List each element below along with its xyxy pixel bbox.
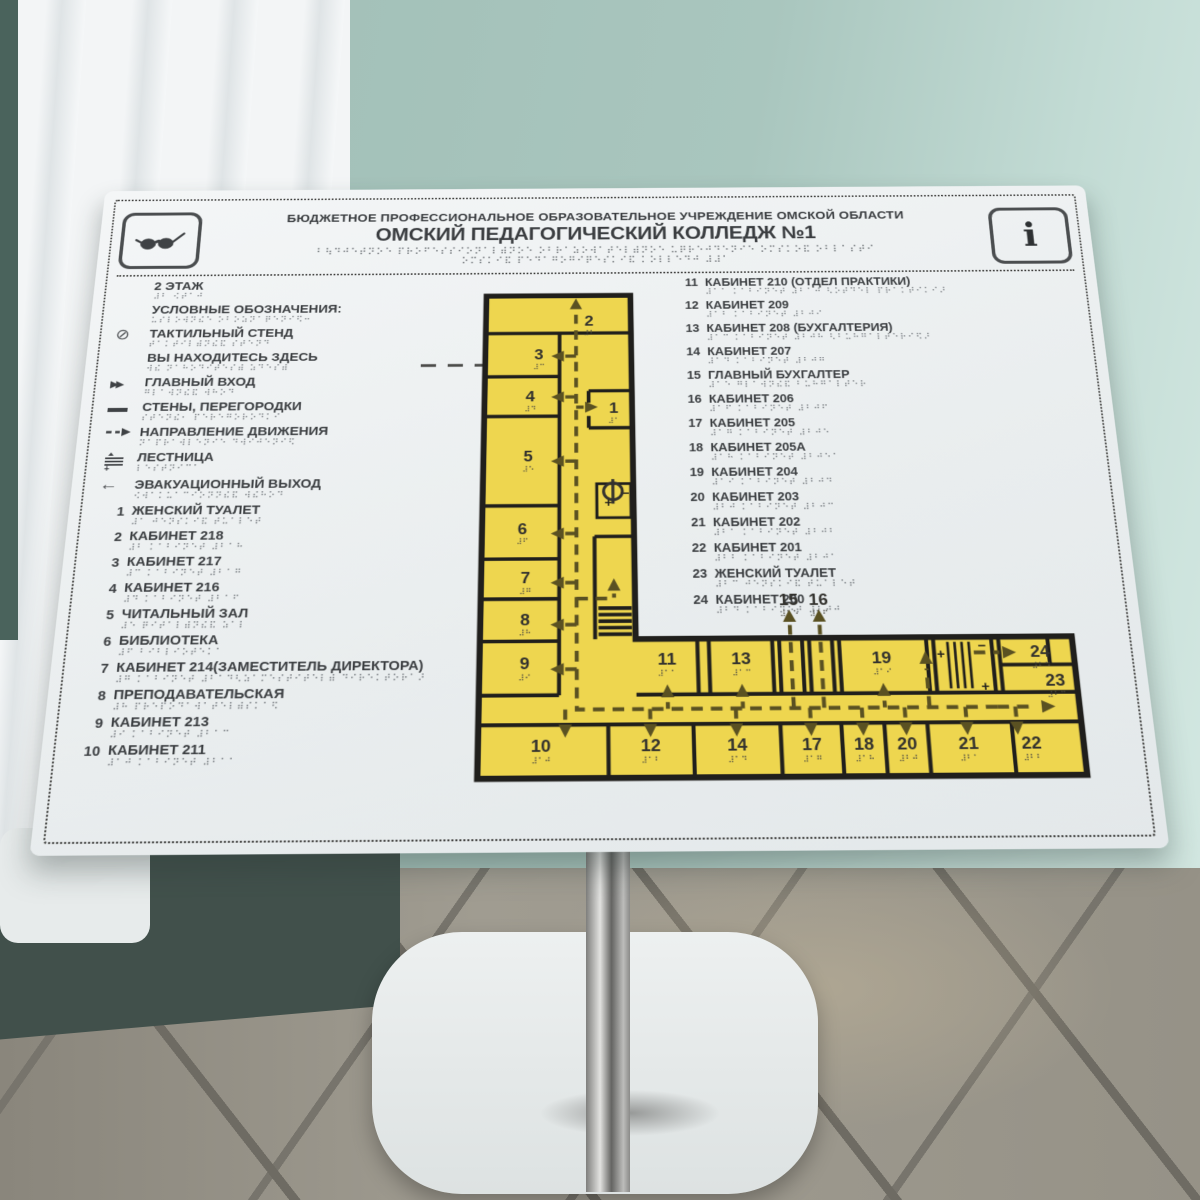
plan-room-braille: ⠼⠁: [608, 416, 620, 425]
room-list-item: 18КАБИНЕТ 205А⠼⠁⠓ ⠅⠁⠃⠊⠝⠑⠞ ⠼⠃⠚⠑⠁: [676, 438, 1062, 462]
plan-room-braille: ⠼⠊: [518, 673, 531, 683]
svg-text:+: +: [604, 496, 612, 510]
legend-item-braille: ⠛⠇⠁⠺⠝⠮⠯ ⠺⠓⠕⠙: [143, 387, 488, 398]
direction-arrow: [644, 724, 658, 737]
plan-room-label: 22: [1020, 733, 1042, 753]
legend-item: СТЕНЫ, ПЕРЕГОРОДКИ⠎⠞⠑⠝⠮⠂ ⠏⠑⠗⠑⠛⠕⠗⠕⠙⠅⠊: [106, 399, 488, 423]
plan-room-label: 8: [520, 610, 530, 628]
floor-label: 2 ЭТАЖ ⠼⠃ ⠪⠞⠁⠚: [119, 279, 490, 302]
tactile-stand-icon: ⊘: [115, 326, 131, 343]
direction-arrow: [877, 683, 891, 696]
room-number: 10: [69, 744, 109, 770]
plan-room-braille: ⠼⠙: [524, 405, 536, 414]
legend-item-braille: ⠝⠁⠏⠗⠁⠺⠇⠑⠝⠊⠑ ⠙⠺⠊⠚⠑⠝⠊⠫: [138, 437, 487, 448]
room-list-item: 3КАБИНЕТ 217⠼⠉ ⠅⠁⠃⠊⠝⠑⠞ ⠼⠃⠁⠛: [89, 553, 485, 579]
plan-room-label: 23: [1044, 671, 1066, 690]
room-braille: ⠼⠙ ⠅⠁⠃⠊⠝⠑⠞ ⠼⠃⠁⠋: [123, 593, 485, 605]
room-list-item: 20КАБИНЕТ 203⠼⠃⠚ ⠅⠁⠃⠊⠝⠑⠞ ⠼⠃⠚⠉: [677, 488, 1067, 513]
room-list-item: 7КАБИНЕТ 214(ЗАМЕСТИТЕЛЬ ДИРЕКТОРА)⠼⠛ ⠅⠁…: [78, 659, 484, 686]
room-list-item: 1ЖЕНСКИЙ ТУАЛЕТ⠼⠁ ⠚⠑⠝⠎⠅⠊⠯ ⠞⠥⠁⠇⠑⠞: [95, 502, 487, 527]
room-number: 19: [676, 465, 712, 488]
floor-label-braille: ⠼⠃ ⠪⠞⠁⠚: [153, 291, 490, 301]
room-braille: ⠼⠊ ⠅⠁⠃⠊⠝⠑⠞ ⠼⠃⠁⠉: [109, 728, 482, 741]
room-number: 22: [678, 541, 714, 564]
room-list-item: 4КАБИНЕТ 216⠼⠙ ⠅⠁⠃⠊⠝⠑⠞ ⠼⠃⠁⠋: [87, 579, 485, 605]
direction-arrow: [804, 723, 818, 736]
room-braille: ⠼⠁⠓ ⠅⠁⠃⠊⠝⠑⠞ ⠼⠃⠚⠑⠁: [711, 452, 1061, 463]
legend-item: ←ЭВАКУАЦИОННЫЙ ВЫХОД⠪⠺⠁⠅⠥⠁⠉⠊⠕⠝⠝⠮⠯ ⠺⠮⠓⠕⠙: [98, 477, 487, 502]
plan-room-braille: ⠼⠓: [518, 629, 531, 639]
plan-room-label: 9: [520, 655, 530, 674]
plan-room-braille: ⠼⠁⠚: [531, 755, 551, 765]
direction-icon: [105, 427, 133, 437]
plan-room-braille: ⠼⠁⠛: [803, 754, 823, 764]
board-header: БЮДЖЕТНОЕ ПРОФЕССИОНАЛЬНОЕ ОБРАЗОВАТЕЛЬН…: [117, 201, 1075, 276]
direction-arrow: [551, 528, 564, 540]
direction-arrow: [551, 351, 564, 362]
room-list-item: 12КАБИНЕТ 209⠼⠁⠃ ⠅⠁⠃⠊⠝⠑⠞ ⠼⠃⠚⠊: [672, 297, 1045, 320]
room-braille: ⠼⠁ ⠚⠑⠝⠎⠅⠊⠯ ⠞⠥⠁⠇⠑⠞: [130, 516, 486, 528]
plan-room-label: 3: [534, 346, 543, 362]
plan-room-label: 6: [518, 520, 528, 538]
room-number: 18: [676, 441, 711, 463]
legend-column: 2 ЭТАЖ ⠼⠃ ⠪⠞⠁⠚ УСЛОВНЫЕ ОБОЗНАЧЕНИЯ: ⠥⠎⠇…: [69, 279, 491, 772]
plan-room-label: 19: [871, 648, 892, 667]
room-list-item: 19КАБИНЕТ 204⠼⠁⠊ ⠅⠁⠃⠊⠝⠑⠞ ⠼⠃⠚⠙: [676, 463, 1064, 488]
direction-arrow: [661, 684, 675, 697]
legend-item: ⊘ТАКТИЛЬНЫЙ СТЕНД⠞⠁⠅⠞⠊⠇⠾⠝⠮⠯ ⠎⠞⠑⠝⠙: [114, 326, 490, 349]
room-braille: ⠼⠑ ⠟⠊⠞⠁⠇⠾⠝⠮⠯ ⠵⠁⠇: [120, 619, 484, 631]
plan-room-label: 17: [801, 734, 822, 754]
room-number: 14: [673, 345, 708, 366]
room-list-item: 6БИБЛИОТЕКА⠼⠋ ⠃⠊⠃⠇⠊⠕⠞⠑⠅⠁: [81, 632, 484, 659]
stand-pole: [586, 826, 630, 1192]
legend-item-braille: ⠞⠁⠅⠞⠊⠇⠾⠝⠮⠯ ⠎⠞⠑⠝⠙: [148, 339, 489, 350]
room-list-item: 11КАБИНЕТ 210 (ОТДЕЛ ПРАКТИКИ)⠼⠁⠁ ⠅⠁⠃⠊⠝⠑…: [671, 274, 1042, 297]
room-braille: ⠼⠁⠙ ⠅⠁⠃⠊⠝⠑⠞ ⠼⠃⠚⠛: [707, 355, 1050, 366]
room-list-11-24: 11КАБИНЕТ 210 (ОТДЕЛ ПРАКТИКИ)⠼⠁⠁ ⠅⠁⠃⠊⠝⠑…: [671, 274, 1079, 619]
plan-room-braille: ⠼⠁⠃: [641, 755, 661, 765]
info-glyph: i: [1021, 220, 1038, 251]
room-list-item: 8ПРЕПОДАВАТЕЛЬСКАЯ⠼⠓ ⠏⠗⠑⠏⠕⠙⠁⠺⠁⠞⠑⠇⠾⠎⠅⠁⠫: [75, 686, 483, 713]
legend-item-braille: ⠪⠺⠁⠅⠥⠁⠉⠊⠕⠝⠝⠮⠯ ⠺⠮⠓⠕⠙: [133, 490, 487, 501]
info-icon: i: [987, 207, 1073, 264]
room-list-item: 13КАБИНЕТ 208 (БУХГАЛТЕРИЯ)⠼⠁⠉ ⠅⠁⠃⠊⠝⠑⠞ ⠼…: [673, 320, 1048, 343]
plan-room-label: 18: [854, 734, 875, 754]
room-list-item: 23ЖЕНСКИЙ ТУАЛЕТ⠼⠃⠉ ⠚⠑⠝⠎⠅⠊⠯ ⠞⠥⠁⠇⠑⠞: [679, 564, 1076, 590]
direction-arrow: [1041, 700, 1056, 713]
room-list-item: 2КАБИНЕТ 218⠼⠃ ⠅⠁⠃⠊⠝⠑⠞ ⠼⠃⠁⠓: [92, 528, 486, 554]
room-braille: ⠼⠃⠁ ⠅⠁⠃⠊⠝⠑⠞ ⠼⠃⠚⠃: [713, 526, 1070, 538]
legend-item-braille: ⠺⠮ ⠝⠁⠓⠕⠙⠊⠞⠑⠎⠾ ⠵⠙⠑⠎⠾: [146, 363, 489, 374]
svg-text:+: +: [936, 647, 946, 662]
plan-room-braille: ⠼⠃: [583, 329, 595, 338]
room-braille: ⠼⠃⠙ ⠅⠁⠃⠊⠝⠑⠞ ⠼⠃⠚⠚: [716, 604, 1079, 616]
room-number: 24: [679, 592, 716, 616]
direction-arrow: [735, 684, 749, 697]
exit-icon: ←: [99, 476, 119, 494]
glasses-glyph: [132, 224, 189, 257]
direction-arrow: [1010, 722, 1025, 735]
plan-room-braille: ⠼⠃⠚: [898, 753, 919, 763]
direction-arrow: [1002, 646, 1017, 658]
room-braille: ⠼⠃ ⠅⠁⠃⠊⠝⠑⠞ ⠼⠃⠁⠓: [128, 541, 486, 553]
legend-items: ⊘ТАКТИЛЬНЫЙ СТЕНД⠞⠁⠅⠞⠊⠇⠾⠝⠮⠯ ⠎⠞⠑⠝⠙ВЫ НАХО…: [98, 326, 490, 501]
room-list-item: 24КАБИНЕТ 200⠼⠃⠙ ⠅⠁⠃⠊⠝⠑⠞ ⠼⠃⠚⠚: [679, 590, 1078, 616]
direction-arrow: [551, 391, 564, 402]
room-list-item: 22КАБИНЕТ 201⠼⠃⠃ ⠅⠁⠃⠊⠝⠑⠞ ⠼⠃⠚⠁: [678, 538, 1073, 564]
legend-item: +ЛЕСТНИЦА⠇⠑⠎⠞⠝⠊⠉⠁: [100, 449, 487, 475]
room-number: 4: [87, 581, 125, 605]
room-braille: ⠼⠉ ⠅⠁⠃⠊⠝⠑⠞ ⠼⠃⠁⠛: [125, 567, 485, 579]
room-braille: ⠼⠃⠉ ⠚⠑⠝⠎⠅⠊⠯ ⠞⠥⠁⠇⠑⠞: [715, 578, 1076, 590]
room-braille: ⠼⠓ ⠏⠗⠑⠏⠕⠙⠁⠺⠁⠞⠑⠇⠾⠎⠅⠁⠫: [112, 700, 483, 713]
room-list-item: 15ГЛАВНЫЙ БУХГАЛТЕР⠼⠁⠑ ⠛⠇⠁⠺⠝⠮⠯ ⠃⠥⠓⠛⠁⠇⠞⠑⠗: [674, 366, 1053, 390]
tactile-board: БЮДЖЕТНОЕ ПРОФЕССИОНАЛЬНОЕ ОБРАЗОВАТЕЛЬН…: [30, 185, 1170, 855]
window-frame: [0, 0, 18, 640]
legend-heading-braille: ⠥⠎⠇⠕⠺⠝⠮⠑ ⠕⠃⠕⠵⠝⠁⠟⠑⠝⠊⠫⠒: [150, 315, 489, 326]
plan-room-braille: ⠼⠛: [519, 586, 532, 596]
room-number: 1: [95, 505, 133, 528]
direction-arrow: [550, 663, 564, 676]
plan-room-label: 5: [523, 448, 533, 465]
plan-room-braille: ⠼⠉: [533, 362, 545, 371]
plan-room-braille: ⠼⠃⠙: [1031, 661, 1051, 671]
room-list-item: 9КАБИНЕТ 213⠼⠊ ⠅⠁⠃⠊⠝⠑⠞ ⠼⠃⠁⠉: [72, 713, 483, 741]
stairs-icon: +: [101, 452, 127, 472]
plan-room-braille: ⠼⠁⠓: [855, 753, 875, 763]
direction-arrow: [585, 402, 598, 413]
svg-text:−: −: [621, 486, 629, 500]
legend-item: ВЫ НАХОДИТЕСЬ ЗДЕСЬ⠺⠮ ⠝⠁⠓⠕⠙⠊⠞⠑⠎⠾ ⠵⠙⠑⠎⠾: [111, 350, 489, 373]
room-number: 17: [675, 416, 710, 438]
you-are-here-symbol: [603, 479, 622, 504]
room-list-1-10: 1ЖЕНСКИЙ ТУАЛЕТ⠼⠁ ⠚⠑⠝⠎⠅⠊⠯ ⠞⠥⠁⠇⠑⠞2КАБИНЕТ…: [69, 502, 487, 769]
room-number: 23: [679, 566, 715, 590]
main-entrance-icon: ▶▶: [110, 378, 122, 389]
direction-arrow: [570, 298, 582, 309]
plan-room-braille: ⠼⠁⠉: [732, 668, 752, 678]
plan-room-braille: ⠼⠋: [516, 537, 529, 546]
direction-arrow: [919, 651, 933, 664]
room-number: 8: [75, 688, 114, 713]
room-number: 15: [674, 369, 709, 391]
legend-item: НАПРАВЛЕНИЕ ДВИЖЕНИЯ⠝⠁⠏⠗⠁⠺⠇⠑⠝⠊⠑ ⠙⠺⠊⠚⠑⠝⠊⠫: [103, 424, 487, 448]
plan-room-label: 2: [584, 313, 593, 329]
plan-room-braille: ⠼⠃⠉: [1047, 690, 1068, 700]
legend-item-braille: ⠇⠑⠎⠞⠝⠊⠉⠁: [136, 462, 488, 473]
room-number: 12: [672, 299, 706, 320]
room-braille: ⠼⠁⠋ ⠅⠁⠃⠊⠝⠑⠞ ⠼⠃⠚⠋: [709, 403, 1055, 414]
legend-item: ▶▶ГЛАВНЫЙ ВХОД⠛⠇⠁⠺⠝⠮⠯ ⠺⠓⠕⠙: [109, 375, 489, 399]
plan-room-label: 10: [531, 736, 551, 756]
legend-heading: УСЛОВНЫЕ ОБОЗНАЧЕНИЯ: ⠥⠎⠇⠕⠺⠝⠮⠑ ⠕⠃⠕⠵⠝⠁⠟⠑⠝…: [117, 302, 490, 325]
direction-arrow: [558, 725, 571, 738]
room-number: 3: [89, 556, 127, 580]
room-number: 5: [84, 608, 123, 632]
plan-room-label: 1: [609, 400, 618, 417]
room-number: 21: [677, 515, 713, 538]
direction-arrow: [856, 723, 870, 736]
room-number: 6: [81, 634, 120, 658]
legend-item-braille: ⠎⠞⠑⠝⠮⠂ ⠏⠑⠗⠑⠛⠕⠗⠕⠙⠅⠊: [141, 412, 488, 423]
room-braille: ⠼⠃⠚ ⠅⠁⠃⠊⠝⠑⠞ ⠼⠃⠚⠉: [712, 501, 1067, 512]
plan-room-label: 21: [958, 733, 980, 753]
room-list-item: 10КАБИНЕТ 211⠼⠁⠚ ⠅⠁⠃⠊⠝⠑⠞ ⠼⠃⠁⠁: [69, 741, 482, 769]
room-braille: ⠼⠁⠉ ⠅⠁⠃⠊⠝⠑⠞ ⠼⠃⠚⠓ ⠣⠃⠥⠓⠛⠁⠇⠞⠑⠗⠊⠫⠜: [707, 332, 1048, 343]
plan-room-label: 13: [731, 649, 751, 668]
room-number: 11: [671, 276, 705, 297]
room-braille: ⠼⠁⠃ ⠅⠁⠃⠊⠝⠑⠞ ⠼⠃⠚⠊: [706, 309, 1045, 319]
room-braille: ⠼⠁⠚ ⠅⠁⠃⠊⠝⠑⠞ ⠼⠃⠁⠁: [106, 756, 481, 769]
plan-room-braille: ⠼⠁⠊: [872, 667, 892, 677]
page-title: ОМСКИЙ ПЕДАГОГИЧЕСКИЙ КОЛЛЕДЖ №1: [212, 222, 978, 247]
direction-arrow: [550, 619, 563, 631]
plan-room-label: 24: [1029, 642, 1051, 661]
direction-arrow: [960, 722, 975, 735]
room-list-item: 14КАБИНЕТ 207⠼⠁⠙ ⠅⠁⠃⠊⠝⠑⠞ ⠼⠃⠚⠛: [673, 343, 1050, 366]
plan-room-label: 14: [727, 735, 748, 755]
room-number: 7: [78, 661, 117, 686]
room-braille: ⠼⠁⠑ ⠛⠇⠁⠺⠝⠮⠯ ⠃⠥⠓⠛⠁⠇⠞⠑⠗: [708, 379, 1053, 390]
room-number: 20: [677, 490, 713, 513]
direction-arrow: [550, 577, 563, 589]
board-body: 2 ЭТАЖ ⠼⠃ ⠪⠞⠁⠚ УСЛОВНЫЕ ОБОЗНАЧЕНИЯ: ⠥⠎⠇…: [58, 274, 1141, 819]
room-braille: ⠼⠁⠛ ⠅⠁⠃⠊⠝⠑⠞ ⠼⠃⠚⠑: [710, 427, 1058, 438]
plan-room-braille: ⠼⠃⠃: [1023, 752, 1044, 762]
room-braille: ⠼⠛ ⠅⠁⠃⠊⠝⠑⠞ ⠼⠃⠁⠙⠣⠵⠁⠍⠑⠎⠞⠊⠞⠑⠇⠾ ⠙⠊⠗⠑⠅⠞⠕⠗⠁⠜: [115, 673, 484, 685]
room-number: 13: [673, 322, 707, 343]
direction-arrow: [551, 455, 564, 466]
svg-text:+: +: [981, 679, 991, 694]
room-braille: ⠼⠃⠃ ⠅⠁⠃⠊⠝⠑⠞ ⠼⠃⠚⠁: [714, 552, 1073, 564]
plan-room-label: 11: [657, 650, 676, 669]
room-braille: ⠼⠁⠊ ⠅⠁⠃⠊⠝⠑⠞ ⠼⠃⠚⠙: [711, 476, 1063, 487]
room-list-item: 21КАБИНЕТ 202⠼⠃⠁ ⠅⠁⠃⠊⠝⠑⠞ ⠼⠃⠚⠃: [677, 513, 1069, 538]
room-braille: ⠼⠋ ⠃⠊⠃⠇⠊⠕⠞⠑⠅⠁: [117, 646, 484, 658]
header-braille: ⠃⠳⠙⠚⠑⠞⠝⠕⠑ ⠏⠗⠕⠋⠑⠎⠎⠊⠕⠝⠁⠇⠾⠝⠕⠑ ⠕⠃⠗⠁⠵⠕⠺⠁⠞⠑⠇⠾⠝…: [307, 244, 885, 267]
svg-text:+: +: [104, 464, 110, 471]
room-list-item: 16КАБИНЕТ 206⠼⠁⠋ ⠅⠁⠃⠊⠝⠑⠞ ⠼⠃⠚⠋: [674, 390, 1055, 414]
plan-room-braille: ⠼⠑: [522, 465, 534, 474]
plan-room-label: 4: [526, 388, 536, 405]
glasses-icon: [117, 212, 203, 269]
plan-room-label: 20: [897, 734, 918, 754]
plan-room-braille: ⠼⠃⠁: [959, 753, 980, 763]
svg-text:−: −: [977, 638, 987, 653]
dotted-frame: БЮДЖЕТНОЕ ПРОФЕССИОНАЛЬНОЕ ОБРАЗОВАТЕЛЬН…: [43, 194, 1156, 844]
walls-icon: [107, 408, 127, 412]
photo-scene: БЮДЖЕТНОЕ ПРОФЕССИОНАЛЬНОЕ ОБРАЗОВАТЕЛЬН…: [0, 0, 1200, 1200]
pole-shadow: [540, 1090, 720, 1136]
room-list-item: 17КАБИНЕТ 205⠼⠁⠛ ⠅⠁⠃⠊⠝⠑⠞ ⠼⠃⠚⠑: [675, 414, 1058, 438]
room-number: 2: [92, 530, 130, 553]
room-braille: ⠼⠁⠁ ⠅⠁⠃⠊⠝⠑⠞ ⠼⠃⠁⠚ ⠣⠕⠞⠙⠑⠇ ⠏⠗⠁⠅⠞⠊⠅⠊⠜: [705, 286, 1042, 296]
plan-room-braille: ⠼⠁⠁: [657, 668, 677, 678]
room-number: 16: [674, 392, 709, 414]
direction-arrow: [607, 578, 620, 590]
room-number: 9: [72, 716, 112, 741]
direction-arrow: [899, 722, 913, 735]
direction-arrow: [730, 723, 744, 736]
plan-room-braille: ⠼⠁⠙: [728, 754, 748, 764]
plan-room-label: 7: [520, 569, 530, 587]
plan-room-label: 12: [641, 736, 661, 756]
room-list-item: 5ЧИТАЛЬНЫЙ ЗАЛ⠼⠑ ⠟⠊⠞⠁⠇⠾⠝⠮⠯ ⠵⠁⠇: [84, 605, 485, 631]
